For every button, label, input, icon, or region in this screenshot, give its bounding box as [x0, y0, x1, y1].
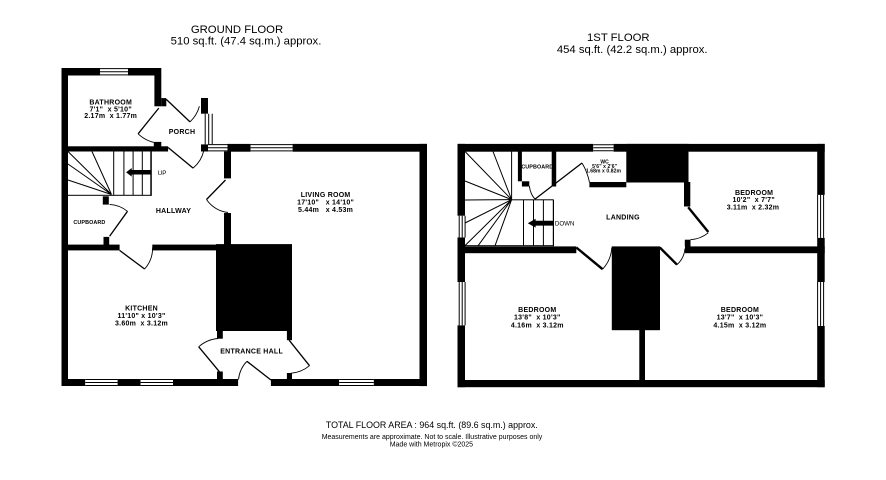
svg-text:CUPBOARD: CUPBOARD: [73, 220, 105, 226]
svg-text:BATHROOM: BATHROOM: [89, 100, 132, 107]
svg-text:BEDROOM: BEDROOM: [518, 307, 556, 314]
svg-text:4.16m x 3.12m: 4.16m x 3.12m: [511, 323, 564, 330]
svg-text:Made with Metropix ©2025: Made with Metropix ©2025: [390, 441, 473, 449]
svg-text:17'10" x 14'10": 17'10" x 14'10": [297, 200, 354, 207]
svg-text:CUPBOARD: CUPBOARD: [521, 165, 553, 171]
svg-text:ENTRANCE HALL: ENTRANCE HALL: [220, 349, 283, 356]
svg-text:13'7" x 10'3": 13'7" x 10'3": [717, 314, 764, 321]
svg-text:5.44m x 4.53m: 5.44m x 4.53m: [298, 207, 353, 214]
svg-text:DOWN: DOWN: [555, 220, 575, 227]
svg-text:4.15m x 3.12m: 4.15m x 3.12m: [713, 323, 766, 330]
svg-text:13'8" x 10'3": 13'8" x 10'3": [514, 314, 561, 321]
svg-text:1ST FLOOR: 1ST FLOOR: [587, 32, 650, 44]
svg-text:HALLWAY: HALLWAY: [156, 208, 191, 215]
svg-text:LANDING: LANDING: [606, 215, 640, 222]
svg-text:PORCH: PORCH: [169, 129, 196, 136]
svg-text:454 sq.ft. (42.2 sq.m.) approx: 454 sq.ft. (42.2 sq.m.) approx.: [557, 44, 708, 56]
svg-text:BEDROOM: BEDROOM: [721, 307, 759, 314]
svg-text:510 sq.ft. (47.4 sq.m.) approx: 510 sq.ft. (47.4 sq.m.) approx.: [171, 35, 322, 47]
svg-text:2.17m x 1.77m: 2.17m x 1.77m: [84, 113, 137, 120]
svg-text:LIVING ROOM: LIVING ROOM: [301, 192, 351, 199]
svg-text:TOTAL FLOOR AREA : 964 sq.ft.: TOTAL FLOOR AREA : 964 sq.ft. (89.6 sq.m…: [326, 420, 538, 430]
svg-text:10'2" x 7'7": 10'2" x 7'7": [732, 197, 774, 204]
svg-text:3.11m x 2.32m: 3.11m x 2.32m: [727, 204, 780, 211]
svg-text:3.60m x 3.12m: 3.60m x 3.12m: [115, 320, 168, 327]
svg-text:GROUND FLOOR: GROUND FLOOR: [191, 24, 283, 36]
svg-text:11'10" x 10'3": 11'10" x 10'3": [117, 313, 165, 320]
svg-text:BEDROOM: BEDROOM: [735, 190, 773, 197]
svg-text:KITCHEN: KITCHEN: [125, 305, 158, 312]
svg-text:1.68m x 0.82m: 1.68m x 0.82m: [586, 169, 622, 175]
svg-text:UP: UP: [158, 170, 167, 177]
svg-text:Measurements are approximate.: Measurements are approximate. Not to sca…: [322, 434, 543, 441]
